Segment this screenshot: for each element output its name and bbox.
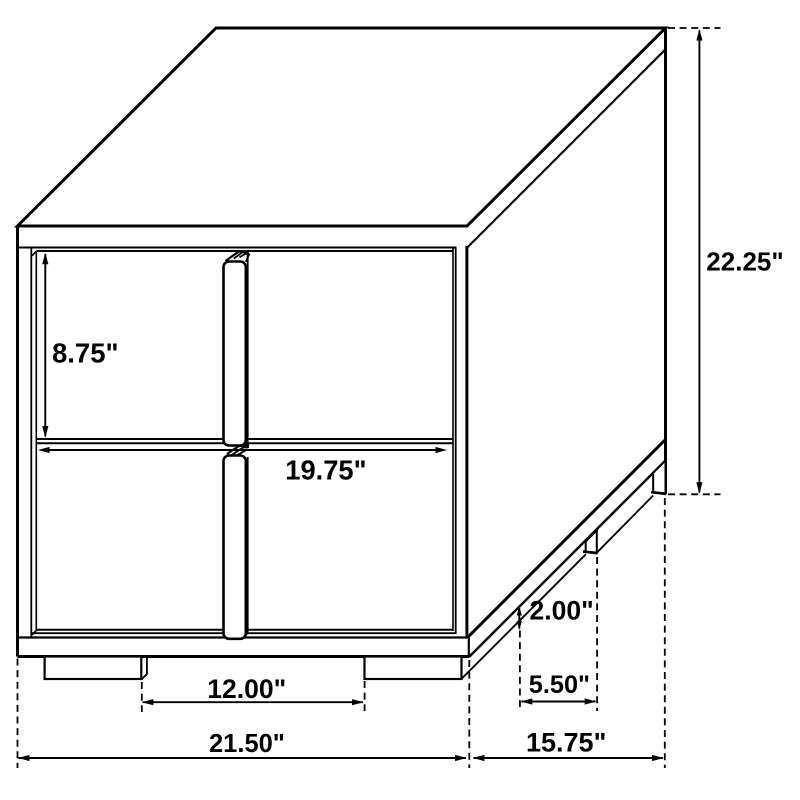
svg-text:5.50": 5.50" xyxy=(529,671,590,699)
svg-text:15.75": 15.75" xyxy=(526,727,606,757)
svg-text:22.25": 22.25" xyxy=(706,246,783,276)
svg-text:8.75": 8.75" xyxy=(52,338,119,369)
svg-text:21.50": 21.50" xyxy=(209,730,285,758)
svg-text:19.75": 19.75" xyxy=(285,454,366,485)
svg-text:2.00": 2.00" xyxy=(530,596,594,626)
svg-text:12.00": 12.00" xyxy=(207,674,286,704)
